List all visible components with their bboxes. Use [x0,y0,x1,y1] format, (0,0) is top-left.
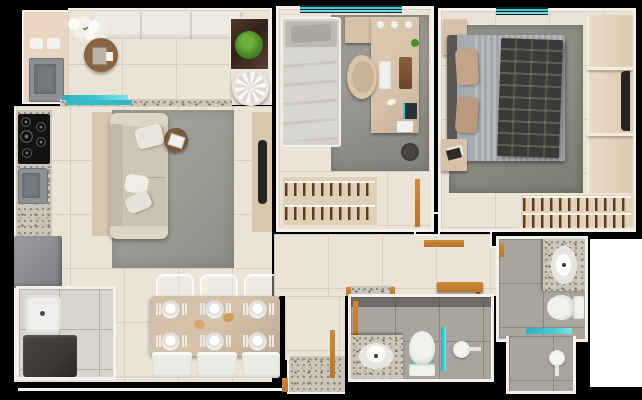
cutlery [243,303,245,315]
tray-book [92,47,107,65]
bathroom-1 [348,294,494,382]
desk-plant [411,39,419,47]
keyboard [379,61,391,89]
sink-drain [562,263,566,267]
cooktop [18,114,50,164]
faucet [577,262,585,265]
closet-shelf-line [587,67,633,70]
burner [21,117,31,127]
round-side-table [164,128,188,152]
cutlery [182,303,184,315]
white-background-block [590,239,642,387]
hangers [523,196,631,211]
burner [20,130,33,143]
burner [36,137,46,147]
grill-sink-basin [34,64,56,94]
book [168,133,186,149]
sliding-glass-door [62,95,128,100]
hallway-floor [285,296,345,360]
hangers [285,181,375,196]
hangers [523,213,631,228]
wall-console [437,282,483,292]
desk-knob [405,21,412,28]
bedroom1-window [300,5,402,13]
desk [371,17,419,133]
desk-chair [347,55,377,99]
cutlery [182,335,184,347]
sofa [110,113,168,239]
toilet [407,331,437,377]
cutlery [243,335,245,347]
mouse [386,98,397,107]
sink-basin [22,173,40,198]
single-bed [281,17,341,147]
sofa-backrest [110,124,123,228]
toilet-bowl [547,295,575,320]
plate [249,333,266,350]
plate [162,301,179,318]
plaid-blanket [497,38,563,158]
closet-shelf-line [587,133,633,136]
shower-arm [555,364,559,376]
cutlery [269,335,271,347]
wash-tank [25,295,61,333]
open-door [330,330,335,378]
faucet [393,352,401,355]
closet-hanger-rail [519,193,635,229]
round-side-table [232,69,269,106]
door-frame [282,378,288,392]
cutlery [226,335,228,347]
sink-drain [374,354,378,358]
toilet [547,293,585,323]
shower-arm [467,347,481,351]
refrigerator [14,236,62,288]
tv [258,140,267,204]
closet-tv [621,71,630,131]
plate [206,333,223,350]
cutlery [156,303,158,315]
laundry-room [16,286,116,380]
clear-chair [156,274,194,298]
glass-shower-screen [441,327,446,371]
clear-chair [200,274,238,298]
bedside-cabinet [345,17,371,43]
wash-tank-drain [40,311,45,316]
desk-knob [391,21,398,28]
nightstand [441,139,467,171]
wall-sconce [30,38,43,49]
chair-seat [352,61,374,93]
vanity [351,335,403,379]
door-frame [499,243,504,257]
bread [222,312,235,324]
bread [193,318,207,331]
oval-sink [551,246,577,284]
wall-shelf [424,240,464,247]
wardrobe-hanger-rail [281,175,379,227]
white-chair [152,352,192,378]
pillow [455,96,479,133]
bed-headboard-pillow [285,21,337,47]
toilet-tank [409,364,435,376]
vanity [543,239,585,291]
washing-machine [23,335,77,377]
tablet [403,103,417,119]
cutlery [269,303,271,315]
bedroom2-window [496,7,548,15]
duvet [283,49,337,141]
hangers [285,205,375,220]
flower-bouquet [68,18,80,30]
shower-head [453,341,470,358]
shower-head [549,350,565,366]
burner [22,148,32,158]
door-frame [415,179,420,227]
toilet-bowl [409,331,435,365]
outer-wall-line [18,388,284,391]
bedroom-2 [438,8,636,232]
toilet-tank [573,296,584,319]
round-tray-table [84,38,118,72]
desk-knob [377,21,384,28]
sofa-armrest [110,226,168,239]
wall-shadow [351,297,491,307]
plate [162,333,179,350]
kitchen-sink [18,168,48,204]
dining-table [150,296,280,356]
plate [249,301,266,318]
hallway-granite-floor [287,356,345,394]
wall-sconce [47,38,60,49]
burner [36,122,46,132]
tray-cup [106,52,113,61]
plate [206,301,223,318]
balcony [68,8,272,105]
white-chair [242,352,280,378]
glass-shelf [526,328,572,334]
floor-plan [0,0,642,400]
cutlery [200,335,202,347]
oval-sink [359,343,393,369]
book [446,147,462,160]
grill-sink [29,58,64,102]
cutlery [156,335,158,347]
plant-stand [230,18,269,70]
balcony-grill-nook [22,10,70,104]
pillow [291,24,332,43]
paper [397,121,413,132]
bathroom-2-shower [506,336,576,394]
bathroom-2 [496,236,588,342]
potted-plant [235,31,263,59]
pillow [455,48,479,85]
white-chair [197,352,237,378]
bedroom-1 [276,6,434,232]
sofa-back-panel [92,112,112,236]
bench-sofa [92,12,244,39]
desk-organizer [399,57,412,89]
cutlery [200,303,202,315]
waste-bin [401,143,419,161]
closet-shelving [587,15,633,205]
